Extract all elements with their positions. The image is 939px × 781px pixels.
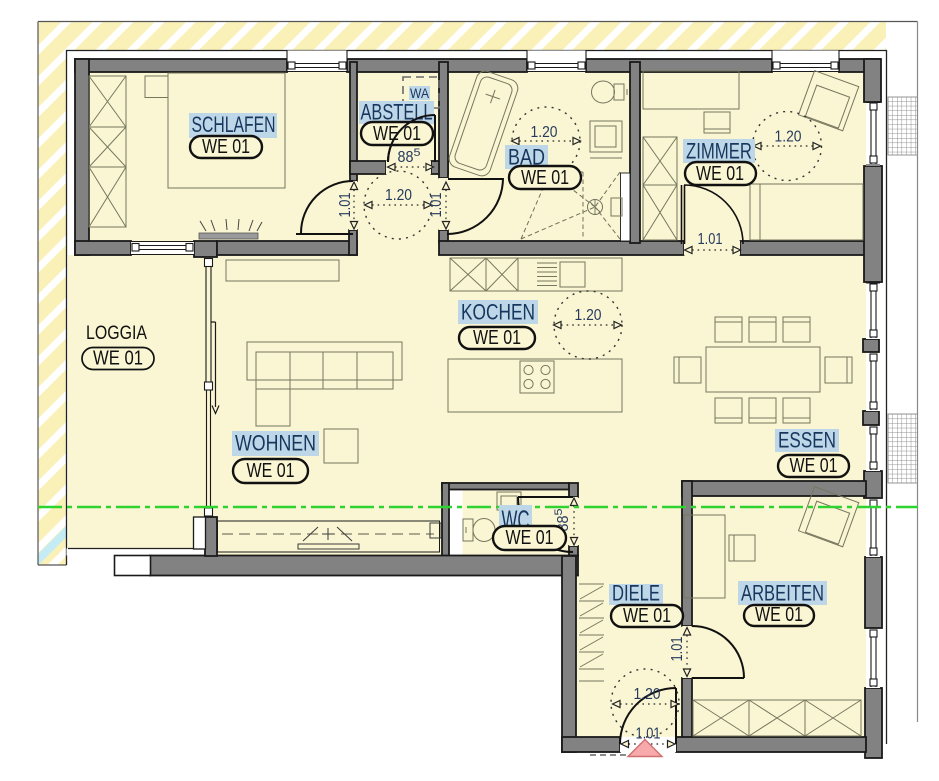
svg-text:SCHLAFEN: SCHLAFEN [192,112,276,137]
svg-text:1.20: 1.20 [385,187,412,204]
svg-text:ABSTELL: ABSTELL [361,100,433,125]
svg-text:1.20: 1.20 [634,686,661,703]
svg-text:1.20: 1.20 [775,129,802,146]
svg-text:WA: WA [410,86,429,101]
svg-text:WE 01: WE 01 [202,135,250,158]
svg-text:WE 01: WE 01 [623,604,671,627]
svg-text:ESSEN: ESSEN [778,428,836,453]
svg-text:WE 01: WE 01 [473,326,521,349]
svg-text:WE 01: WE 01 [755,603,803,626]
svg-text:WE 01: WE 01 [93,347,143,370]
svg-text:LOGGIA: LOGGIA [86,323,147,344]
svg-text:KOCHEN: KOCHEN [461,300,535,325]
svg-text:ARBEITEN: ARBEITEN [741,581,824,606]
svg-text:1.01: 1.01 [428,193,445,218]
svg-text:WE 01: WE 01 [696,162,744,185]
svg-text:WOHNEN: WOHNEN [235,431,316,456]
svg-text:WE 01: WE 01 [506,526,554,549]
svg-text:WE 01: WE 01 [521,166,569,189]
svg-text:1.20: 1.20 [575,307,602,324]
svg-text:DIELE: DIELE [612,581,660,606]
svg-text:WE 01: WE 01 [247,459,295,482]
svg-text:WE 01: WE 01 [790,454,838,477]
svg-text:1.01: 1.01 [337,193,354,218]
svg-text:1.20: 1.20 [531,124,558,141]
svg-text:1.01: 1.01 [669,637,686,662]
svg-text:1.01: 1.01 [698,231,723,248]
svg-text:1.01: 1.01 [636,726,661,743]
svg-text:ZIMMER: ZIMMER [686,139,752,164]
